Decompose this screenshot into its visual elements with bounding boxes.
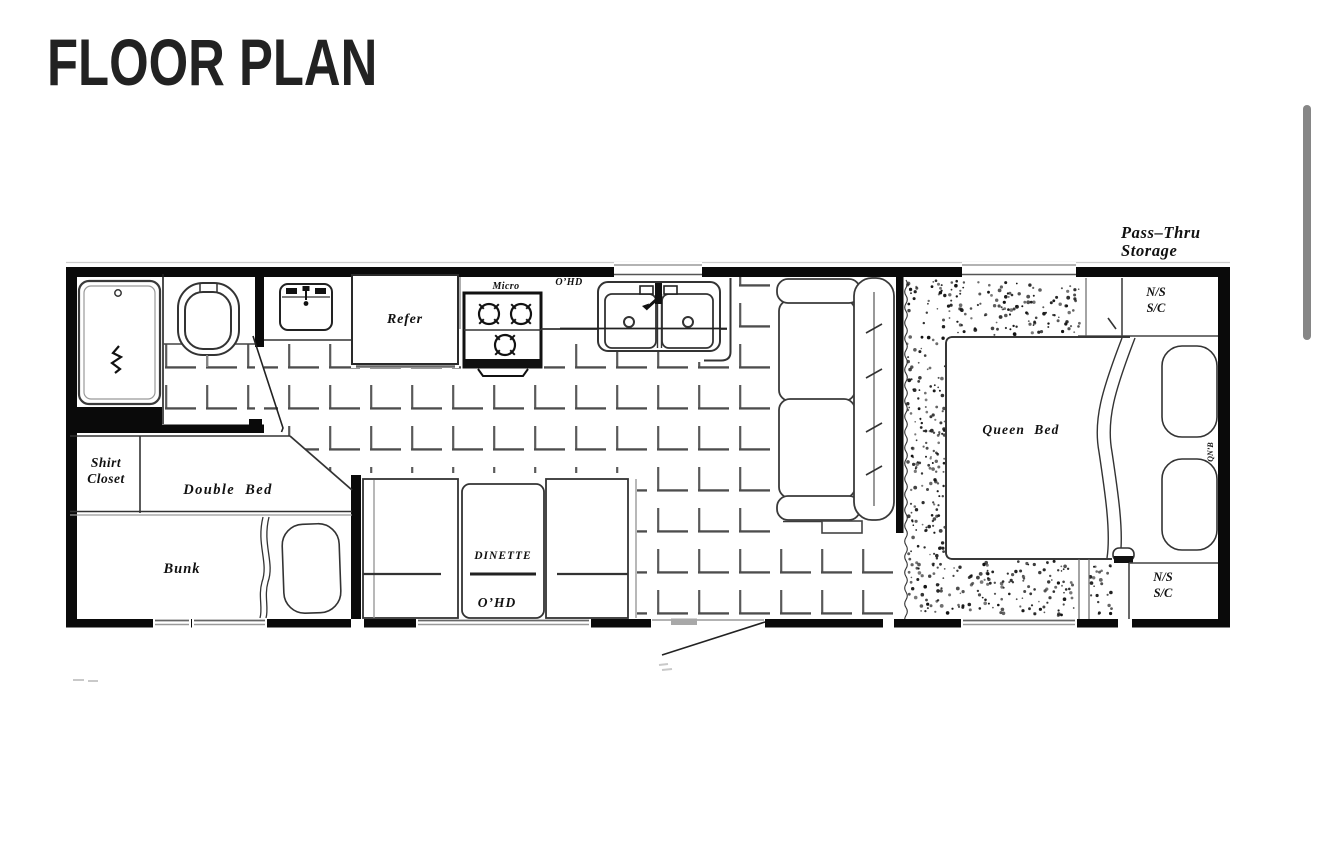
svg-text:Bunk: Bunk [162,561,200,577]
svg-text:Micro: Micro [492,281,520,292]
svg-text:Refer: Refer [386,312,423,327]
svg-text:Queen Bed: Queen Bed [982,422,1059,437]
svg-text:Shirt: Shirt [91,455,122,470]
svg-text:DINETTE: DINETTE [473,550,531,562]
svg-text:O’HD: O’HD [478,595,517,610]
svg-text:Double Bed: Double Bed [182,482,273,498]
svg-text:Pass–Thru: Pass–Thru [1120,223,1201,242]
svg-text:S/C: S/C [1147,301,1166,315]
svg-text:S/C: S/C [1154,586,1173,600]
svg-text:Storage: Storage [1121,241,1177,260]
svg-text:N/S: N/S [1145,285,1166,299]
svg-text:QN’B: QN’B [1206,442,1215,462]
svg-text:N/S: N/S [1152,570,1173,584]
svg-text:Closet: Closet [87,471,125,486]
svg-text:O’HD: O’HD [555,277,582,288]
